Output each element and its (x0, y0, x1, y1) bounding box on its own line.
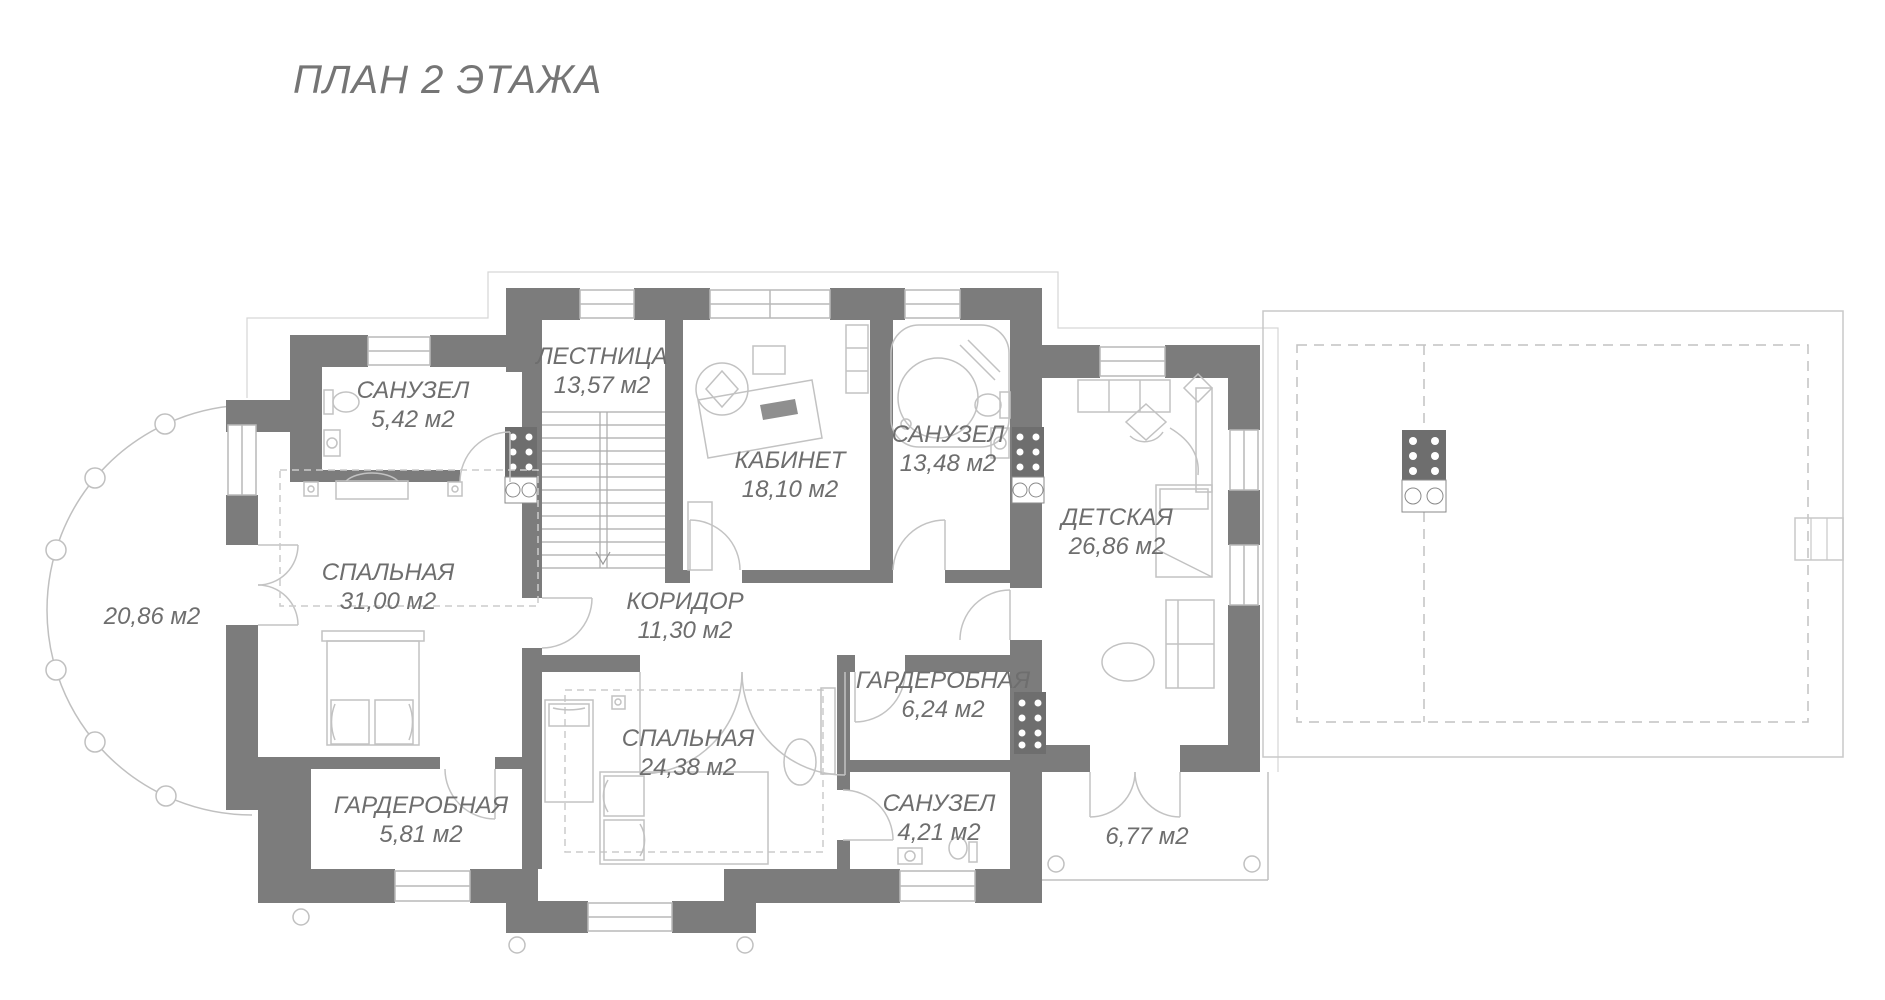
toilet (333, 392, 359, 412)
room-label-childrens-room: ДЕТСКАЯ 26,86 м2 (1061, 503, 1172, 561)
room-label-bedroom-left: СПАЛЬНАЯ 31,00 м2 (322, 558, 455, 616)
table (1102, 643, 1154, 681)
room-label-bedroom-bottom: СПАЛЬНАЯ 24,38 м2 (622, 724, 755, 782)
toilet (975, 394, 1001, 416)
page-title: ПЛАН 2 ЭТАЖА (293, 58, 602, 103)
monitor (753, 346, 785, 374)
roof-terrace-outline (1263, 311, 1843, 757)
shelf (846, 325, 868, 393)
room-label-bathroom-big: САНУЗЕЛ 13,48 м2 (892, 420, 1005, 478)
bed (600, 772, 768, 864)
area-label-right-balcony: 6,77 м2 (1105, 822, 1188, 851)
room-label-wardrobe-left: ГАРДЕРОБНАЯ 5,81 м2 (334, 791, 508, 849)
floor-plan-page: ПЛАН 2 ЭТАЖА САНУЗЕЛ 5,42 м2 ЛЕСТНИЦА 13… (0, 0, 1885, 1000)
room-label-corridor: КОРИДОР 11,30 м2 (626, 587, 743, 645)
room-label-bathroom-top: САНУЗЕЛ 5,42 м2 (357, 376, 470, 434)
room-label-wardrobe-right: ГАРДЕРОБНАЯ 6,24 м2 (856, 666, 1030, 724)
area-label-round-balcony: 20,86 м2 (104, 602, 201, 631)
floor-plan-drawing (0, 0, 1885, 1000)
toilet-tank (324, 390, 333, 414)
bathroom-top-furniture (324, 390, 359, 456)
wardrobe (1078, 380, 1170, 412)
shelf (688, 502, 712, 570)
chimney-shaft (1402, 430, 1446, 512)
chimney-shaft (1012, 427, 1044, 503)
desk (1196, 388, 1212, 492)
bed-headboard (322, 631, 424, 641)
room-label-staircase: ЛЕСТНИЦА 13,57 м2 (536, 342, 668, 400)
bed (545, 700, 593, 802)
bed (327, 641, 419, 745)
bassinet (784, 739, 816, 785)
room-label-study: КАБИНЕТ 18,10 м2 (735, 446, 846, 504)
room-label-bathroom-bottom: САНУЗЕЛ 4,21 м2 (883, 789, 996, 847)
stairs (542, 412, 665, 568)
